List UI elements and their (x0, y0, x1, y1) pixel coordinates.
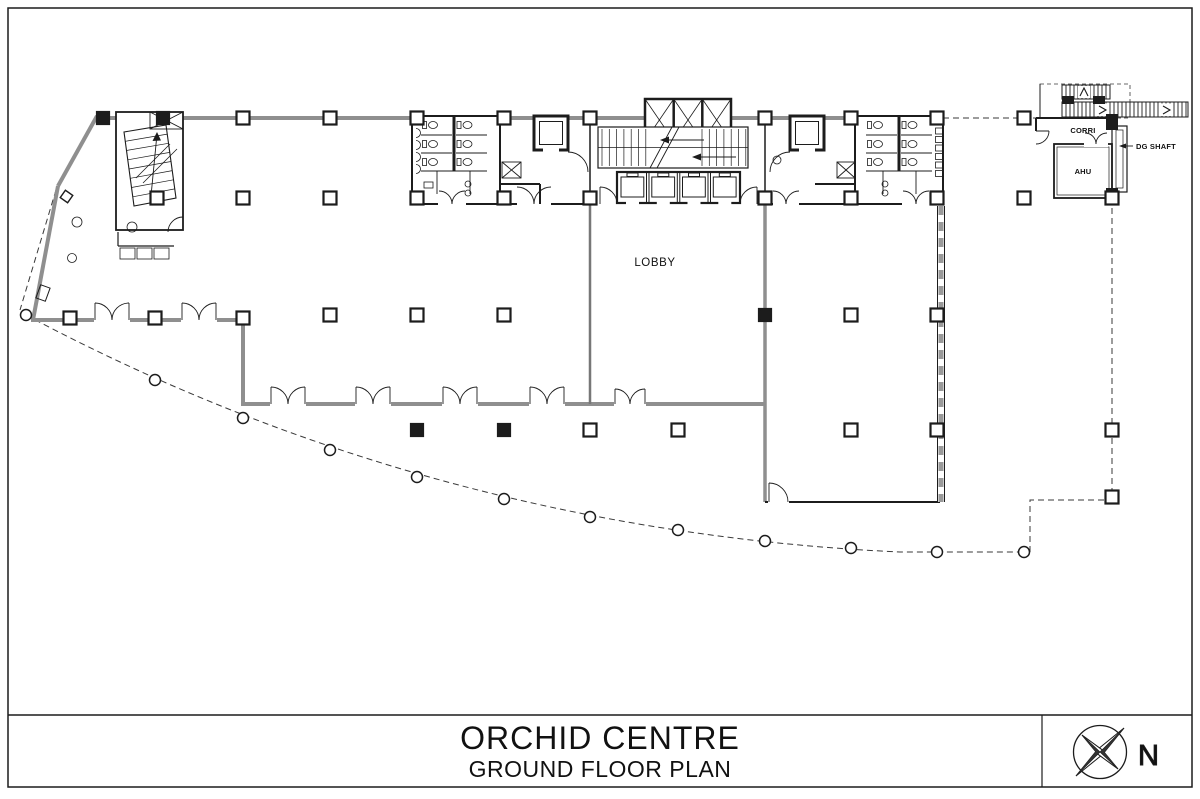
column-marker (411, 112, 424, 125)
column-marker (151, 192, 164, 205)
column-marker (498, 309, 511, 322)
canopy-column-marker (21, 310, 32, 321)
corridor-label: CORRI (1070, 126, 1095, 135)
canopy-column-marker (1019, 547, 1030, 558)
landing-block (1093, 96, 1105, 104)
column-marker (237, 192, 250, 205)
column-marker (931, 112, 944, 125)
column-marker (237, 312, 250, 325)
column-marker (931, 309, 944, 322)
ahu-label: AHU (1075, 167, 1092, 176)
column-marker (411, 309, 424, 322)
column-marker (845, 309, 858, 322)
column-marker (324, 192, 337, 205)
canopy-column-marker (585, 512, 596, 523)
column-marker (324, 309, 337, 322)
column-marker (411, 192, 424, 205)
stair-block-outline (116, 112, 183, 230)
canopy-column-marker (760, 536, 771, 547)
column-marker (411, 424, 423, 436)
drawing-sheet: LOBBY CORRI AHU DG SHAFT ORCHID CENTRE G… (0, 0, 1200, 799)
lift-door-gap (799, 148, 815, 153)
lobby-label: LOBBY (634, 257, 675, 269)
toilet-outline (412, 116, 500, 204)
canopy-column-marker (673, 525, 684, 536)
canopy-column-marker (846, 543, 857, 554)
canopy-column-marker (150, 375, 161, 386)
column-marker (1106, 424, 1119, 437)
column-marker (584, 112, 597, 125)
column-marker (759, 309, 771, 321)
column-marker (931, 424, 944, 437)
column-marker (64, 312, 77, 325)
column-marker (1018, 192, 1031, 205)
column-marker (498, 424, 510, 436)
canopy-column-marker (932, 547, 943, 558)
column-marker (157, 112, 169, 124)
lift-door-gap (543, 148, 559, 153)
north-label: N (1138, 740, 1159, 772)
column-marker (149, 312, 162, 325)
column-marker (759, 112, 772, 125)
column-marker (931, 192, 944, 205)
column-marker (498, 112, 511, 125)
project-title: ORCHID CENTRE (460, 720, 740, 756)
sheet-border (8, 8, 1192, 787)
canopy-column-marker (325, 445, 336, 456)
landing-block (1062, 96, 1074, 104)
column-marker (1106, 192, 1119, 205)
column-marker (97, 112, 109, 124)
column-marker (845, 192, 858, 205)
floor-plan-canvas: LOBBY CORRI AHU DG SHAFT ORCHID CENTRE G… (0, 0, 1200, 799)
canopy-column-marker (238, 413, 249, 424)
column-marker (237, 112, 250, 125)
column-marker (672, 424, 685, 437)
toilet-block-west (412, 116, 500, 204)
column-marker (1106, 491, 1119, 504)
column-marker (498, 192, 511, 205)
dg-shaft-label: DG SHAFT (1136, 142, 1176, 151)
canopy-column-marker (412, 472, 423, 483)
column-marker (759, 192, 772, 205)
drawing-title: GROUND FLOOR PLAN (469, 756, 732, 782)
column-marker (845, 112, 858, 125)
column-marker (584, 424, 597, 437)
column-marker (584, 192, 597, 205)
column-marker (1018, 112, 1031, 125)
column-marker (324, 112, 337, 125)
column-marker (845, 424, 858, 437)
canopy-column-marker (499, 494, 510, 505)
